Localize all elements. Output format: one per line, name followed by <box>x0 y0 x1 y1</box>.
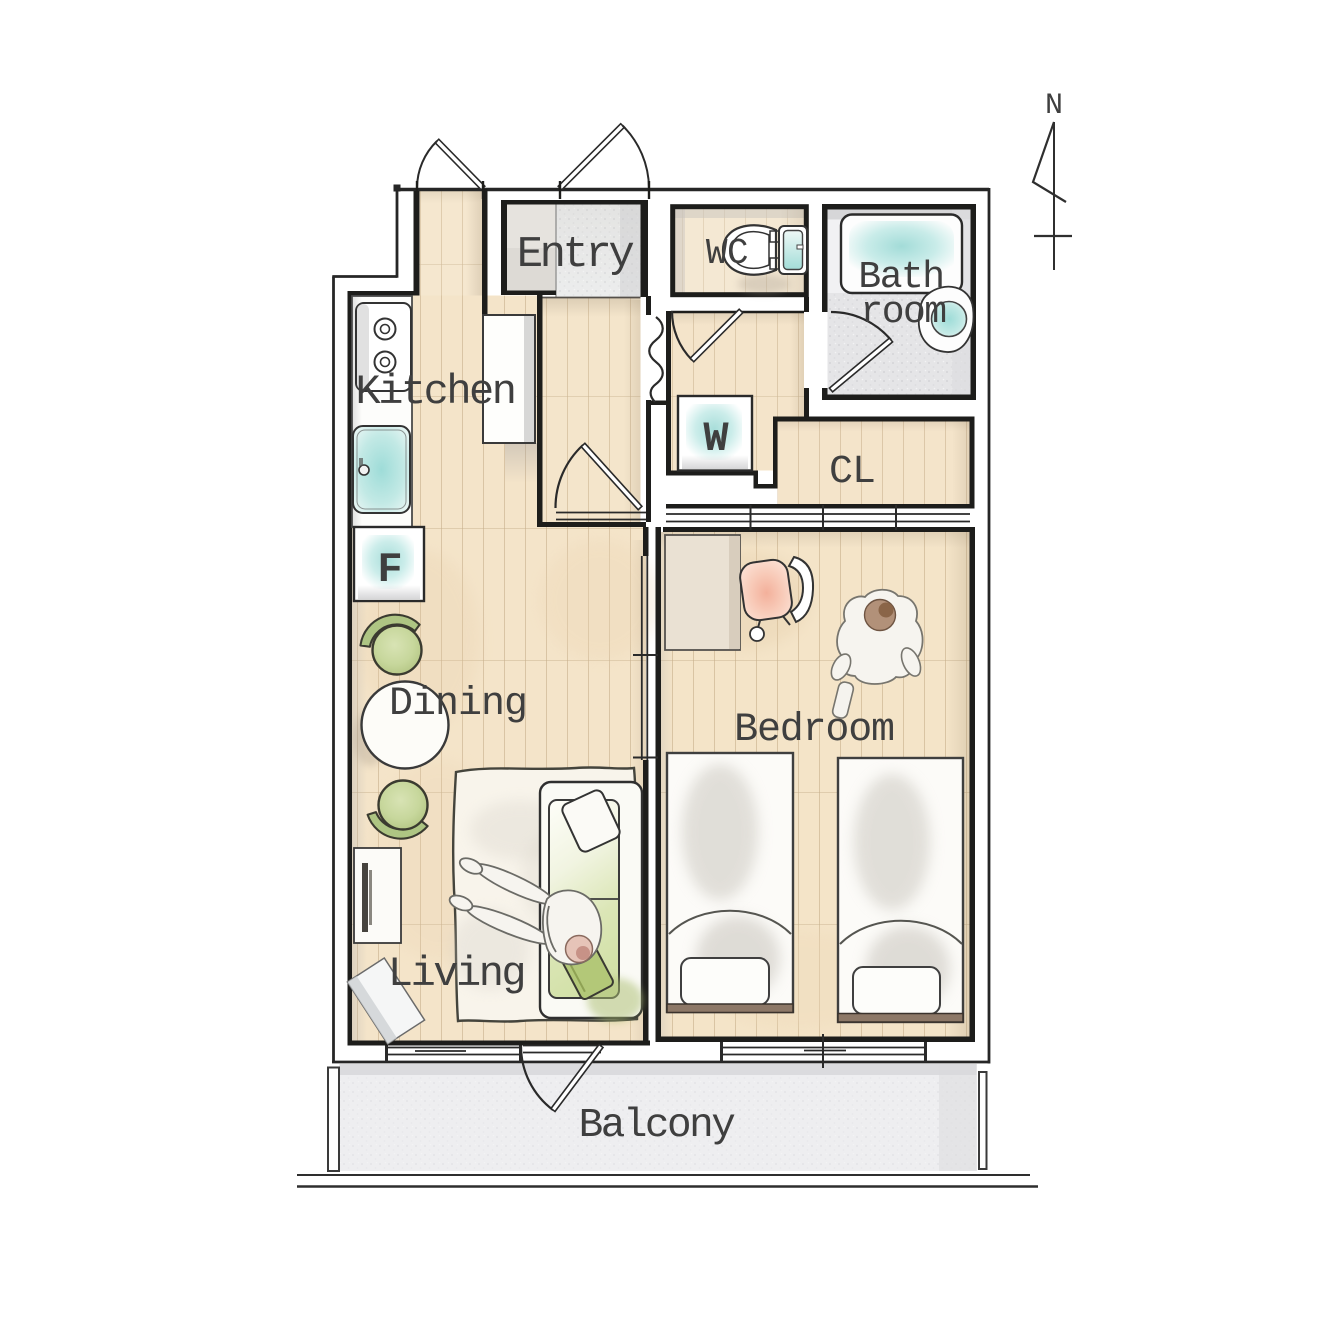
svg-text:Entry: Entry <box>517 230 634 280</box>
svg-text:W: W <box>703 415 729 463</box>
svg-text:room: room <box>860 291 945 334</box>
svg-text:F: F <box>377 546 402 594</box>
svg-text:Kitchen: Kitchen <box>356 368 515 416</box>
svg-text:N: N <box>1045 89 1063 123</box>
svg-text:Bedroom: Bedroom <box>734 708 894 753</box>
svg-text:CL: CL <box>829 450 875 495</box>
svg-text:Living: Living <box>388 950 524 998</box>
svg-text:WC: WC <box>706 233 748 274</box>
svg-text:Dining: Dining <box>389 682 527 727</box>
svg-text:Balcony: Balcony <box>579 1103 736 1149</box>
